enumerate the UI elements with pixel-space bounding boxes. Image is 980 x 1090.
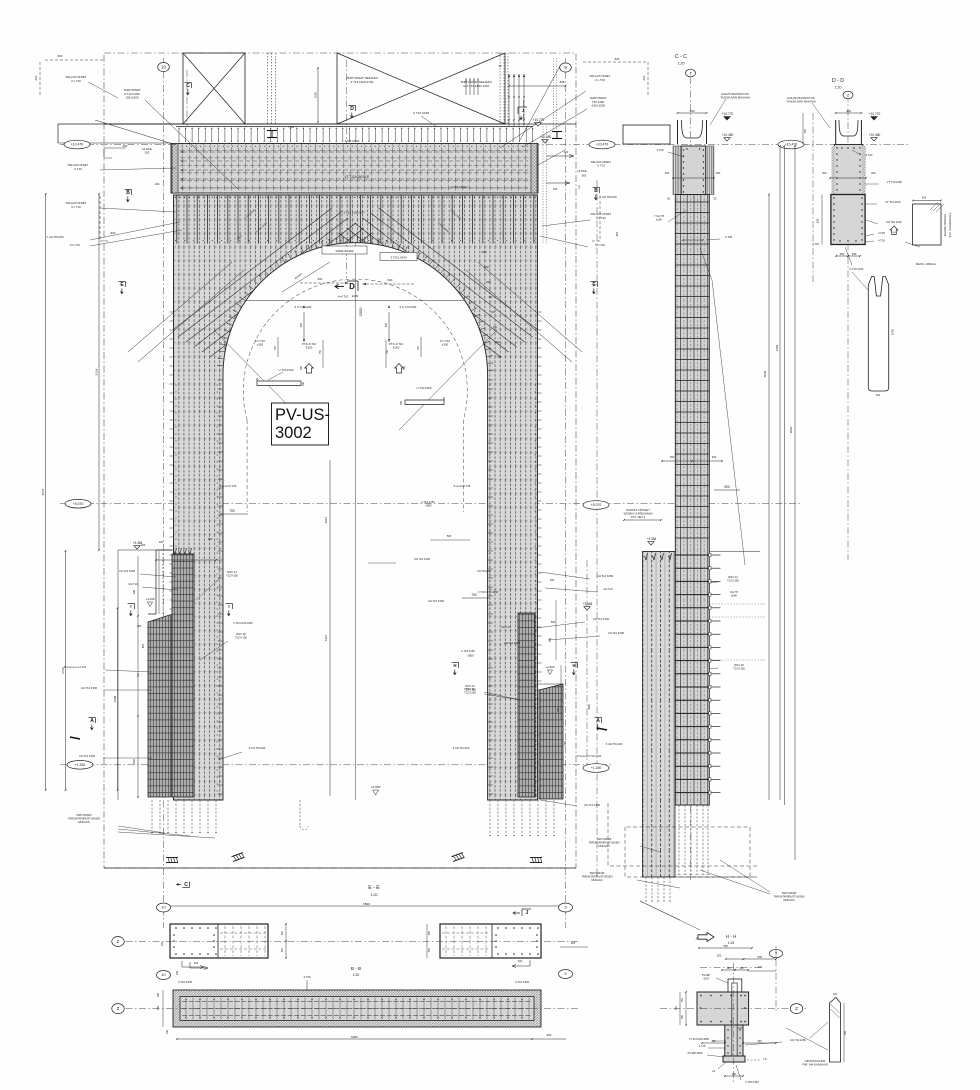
svg-text:300: 300 (176, 970, 179, 975)
svg-text:UH T12 K100: UH T12 K100 (584, 803, 601, 807)
svg-text:UH T10 K190: UH T10 K190 (608, 631, 625, 635)
svg-text:MUKAAN: MUKAAN (783, 898, 794, 902)
svg-text:2 T20: 2 T20 (866, 153, 873, 157)
svg-text:5030: 5030 (763, 370, 767, 377)
svg-text:H: H (572, 663, 575, 668)
svg-text:3 T16 K150-1800: 3 T16 K150-1800 (233, 622, 253, 625)
svg-text:9670: 9670 (41, 488, 45, 495)
svg-text:UH T12 K150: UH T12 K150 (428, 599, 445, 603)
svg-text:310: 310 (876, 393, 881, 397)
svg-text:400: 400 (194, 961, 199, 965)
svg-text:400: 400 (518, 959, 523, 963)
svg-text:LS: LS (712, 1069, 715, 1073)
svg-text:5200: 5200 (351, 1035, 358, 1039)
svg-text:2 T16 k150: 2 T16 k150 (461, 649, 475, 653)
svg-text:-1850: -1850 (425, 504, 432, 508)
svg-text:500: 500 (758, 955, 763, 959)
svg-text:8316: 8316 (324, 516, 328, 523)
svg-text:TARUNTAPIIRUSTUKSEN: TARUNTAPIIRUSTUKSEN (773, 895, 804, 899)
svg-text:U T10 k150: U T10 k150 (417, 386, 432, 390)
svg-text:700: 700 (417, 345, 420, 350)
svg-text:800: 800 (615, 57, 620, 61)
svg-text:UH T10: UH T10 (128, 582, 138, 586)
svg-text:Z: Z (795, 1006, 798, 1011)
svg-text:250: 250 (732, 1073, 737, 1076)
svg-text:100: 100 (553, 187, 558, 191)
svg-text:D: D (350, 106, 354, 112)
svg-text:U T10 k150: U T10 k150 (279, 368, 294, 372)
svg-text:3 T16 K150-1800: 3 T16 K150-1800 (478, 590, 499, 594)
svg-text:+10.770: +10.770 (533, 118, 545, 122)
svg-text:200: 200 (871, 171, 876, 175)
svg-text:750: 750 (471, 593, 477, 597)
svg-text:430: 430 (385, 322, 388, 327)
svg-text:2 T25 L5430: 2 T25 L5430 (345, 139, 360, 143)
svg-text:UH T8 k200: UH T8 k200 (477, 569, 491, 573)
svg-text:+10.480: +10.480 (540, 135, 552, 139)
svg-text:K150: K150 (393, 346, 400, 350)
svg-text:J: J (526, 910, 529, 916)
svg-text:50: 50 (667, 197, 670, 201)
svg-text:450: 450 (493, 326, 498, 329)
svg-text:3 T25 L5430: 3 T25 L5430 (390, 256, 407, 260)
svg-text:400: 400 (550, 578, 555, 582)
svg-text:C - C: C - C (675, 54, 687, 60)
svg-text:800: 800 (58, 54, 63, 58)
svg-text:250: 250 (428, 947, 431, 952)
svg-text:2000: 2000 (358, 307, 363, 317)
svg-text:10: 10 (161, 973, 165, 977)
svg-text:125: 125 (740, 967, 745, 970)
svg-text:UH T12 K150: UH T12 K150 (81, 686, 98, 690)
svg-text:U T10 K150: U T10 K150 (515, 980, 530, 984)
svg-text:U T10 k150: U T10 k150 (849, 267, 863, 271)
svg-text:250: 250 (712, 455, 717, 459)
svg-text:+4.384: +4.384 (647, 537, 657, 541)
svg-text:1:20: 1:20 (678, 62, 685, 66)
svg-text:449: 449 (893, 232, 896, 234)
svg-text:250: 250 (428, 930, 431, 935)
svg-text:UH T10: UH T10 (603, 587, 613, 591)
svg-text:+0.650: +0.650 (371, 785, 381, 789)
svg-text:600: 600 (318, 277, 323, 281)
svg-text:5+2+2+5 T25: 5+2+2+5 T25 (454, 484, 471, 488)
svg-text:UH T12 K100: UH T12 K100 (79, 754, 96, 758)
svg-text:E - E: E - E (368, 885, 380, 891)
svg-text:RSV 18: RSV 18 (236, 632, 246, 636)
svg-text:2 L T16: 2 L T16 (595, 78, 605, 82)
svg-text:750: 750 (319, 349, 322, 354)
svg-text:LIIKUNTASAUMA: LIIKUNTASAUMA (805, 1059, 826, 1063)
svg-text:LS: LS (763, 1057, 766, 1061)
svg-text:9: 9 (564, 906, 566, 910)
svg-text:1000: 1000 (486, 281, 492, 284)
svg-text:1000: 1000 (133, 759, 136, 765)
svg-text:6 U T10 k150: 6 U T10 k150 (400, 305, 417, 309)
svg-text:190+1500: 190+1500 (126, 96, 139, 100)
svg-text:250: 250 (137, 624, 142, 628)
svg-text:-190+1500: -190+1500 (591, 104, 605, 108)
svg-text:6=2+2+1+1+4 T16: 6=2+2+1+1+4 T16 (64, 665, 87, 669)
svg-text:7 UH T8 k100: 7 UH T8 k100 (599, 195, 617, 199)
svg-text:PIIR. 044 N MUKAAN: PIIR. 044 N MUKAAN (802, 1063, 827, 1067)
svg-text:D - D: D - D (832, 78, 844, 84)
svg-text:3 T25: 3 T25 (725, 235, 733, 239)
svg-text:+1.150: +1.150 (75, 763, 86, 767)
svg-text:200: 200 (716, 171, 721, 175)
svg-text:B: B (126, 190, 130, 196)
svg-text:RSV 14: RSV 14 (227, 570, 237, 574)
svg-text:800: 800 (111, 231, 116, 235)
svg-text:+10.480: +10.480 (722, 133, 734, 137)
svg-text:250: 250 (157, 1005, 160, 1010)
svg-text:2 T20: 2 T20 (657, 148, 664, 152)
svg-text:100: 100 (155, 182, 160, 186)
svg-text:200: 200 (166, 1029, 169, 1034)
svg-text:2 T16 k150: 2 T16 k150 (421, 500, 435, 504)
svg-text:500: 500 (758, 1040, 763, 1043)
svg-text:k100: k100 (656, 218, 662, 222)
svg-text:A: A (696, 936, 699, 941)
svg-text:TARTUNNAT: TARTUNNAT (596, 837, 612, 841)
svg-text:9: 9 (564, 972, 566, 976)
svg-text:600: 600 (133, 589, 136, 594)
svg-text:UH T10 k150: UH T10 k150 (886, 220, 902, 224)
svg-text:3=1+2+2+6 T16 K150: 3=1+2+2+6 T16 K150 (577, 755, 602, 758)
svg-text:TASOKUVAN MUKAAN: TASOKUVAN MUKAAN (786, 100, 816, 104)
svg-text:D: D (349, 282, 355, 291)
svg-text:4+4 T12 k100-1700: 4+4 T12 k100-1700 (463, 84, 489, 88)
svg-text:2 T12 k100-1700: 2 T12 k100-1700 (351, 80, 374, 84)
svg-text:1:25: 1:25 (728, 941, 734, 945)
svg-text:MAKS. 1000mm: MAKS. 1000mm (916, 262, 937, 266)
svg-text:MUKAAN: MUKAAN (591, 878, 602, 882)
svg-text:T12 K150: T12 K150 (464, 691, 476, 695)
svg-text:900: 900 (844, 1030, 847, 1035)
svg-text:+10.770: +10.770 (722, 112, 734, 116)
svg-text:TARUNTAPIIRUSTUKSEN: TARUNTAPIIRUSTUKSEN (581, 875, 612, 879)
svg-text:VT T12 k150: VT T12 k150 (885, 200, 901, 204)
svg-text:U T10: U T10 (74, 167, 82, 171)
svg-text:KTS. NAAMAKUVA A: KTS. NAAMAKUVA A (948, 212, 952, 237)
svg-text:ULOKE: ULOKE (577, 169, 586, 173)
svg-text:RSV 14: RSV 14 (728, 575, 738, 579)
svg-text:700: 700 (274, 345, 277, 350)
svg-text:300: 300 (157, 992, 160, 997)
svg-text:500: 500 (547, 1033, 552, 1037)
svg-text:480: 480 (689, 109, 694, 113)
svg-text:50: 50 (713, 197, 716, 201)
svg-text:+10.470: +10.470 (596, 143, 608, 147)
svg-text:PV-MP-3020: PV-MP-3020 (688, 1051, 703, 1055)
svg-text:H: H (453, 663, 456, 668)
svg-text:TARTUNNAT: TARTUNNAT (76, 813, 92, 817)
svg-text:250: 250 (717, 954, 722, 958)
svg-text:6316: 6316 (324, 634, 328, 641)
svg-text:3 T25: 3 T25 (303, 975, 311, 979)
svg-text:SÄDE=R2000: SÄDE=R2000 (335, 249, 353, 253)
svg-text:1650: 1650 (481, 251, 487, 254)
svg-text:H - H: H - H (726, 934, 737, 939)
svg-text:5500: 5500 (363, 902, 370, 906)
svg-text:500: 500 (491, 311, 496, 314)
svg-text:k200: k200 (731, 594, 737, 598)
svg-text:1:20: 1:20 (835, 86, 842, 90)
svg-text:+10.480: +10.480 (869, 133, 881, 137)
svg-text:400: 400 (564, 150, 569, 154)
svg-text:MUKAAN: MUKAAN (78, 820, 90, 824)
svg-text:600: 600 (388, 278, 393, 282)
svg-text:+10.770: +10.770 (869, 112, 881, 116)
svg-text:200: 200 (665, 171, 670, 175)
svg-text:TARTUNNAT: TARTUNNAT (781, 891, 797, 895)
svg-text:z: z (689, 71, 691, 76)
svg-text:K150: K150 (306, 346, 313, 350)
svg-text:I: I (228, 604, 229, 609)
svg-text:400: 400 (758, 965, 763, 969)
svg-text:430: 430 (300, 322, 303, 327)
svg-text:UH T10 k150: UH T10 k150 (790, 1038, 806, 1042)
svg-text:6 UH T8 k100: 6 UH T8 k100 (249, 746, 266, 750)
svg-text:+3.495: +3.495 (146, 597, 155, 601)
svg-text:UH T10: UH T10 (501, 625, 511, 629)
svg-text:7 UH T8: 7 UH T8 (654, 214, 664, 218)
svg-text:500: 500 (551, 620, 556, 624)
svg-text:500: 500 (816, 218, 820, 223)
svg-text:1:20: 1:20 (371, 893, 378, 897)
svg-text:250: 250 (840, 252, 845, 256)
svg-text:750: 750 (723, 944, 728, 948)
svg-text:6 UH T8 k100: 6 UH T8 k100 (453, 746, 470, 750)
svg-text:2 L T16: 2 L T16 (71, 79, 81, 83)
svg-text:400: 400 (208, 537, 213, 541)
svg-text:+5.070: +5.070 (73, 502, 84, 506)
svg-text:VT.3 T12 k150 M.P.: VT.3 T12 k150 M.P. (339, 211, 365, 215)
svg-text:500: 500 (724, 485, 730, 489)
svg-text:I: I (130, 604, 131, 609)
svg-text:7.080: 7.080 (288, 125, 295, 129)
svg-text:UH T10 K150: UH T10 K150 (597, 574, 614, 578)
svg-text:300: 300 (804, 128, 807, 133)
svg-text:430: 430 (922, 196, 927, 200)
svg-text:SEINÄN YLÄREUNAAN: SEINÄN YLÄREUNAAN (624, 512, 653, 516)
svg-text:B - B: B - B (351, 966, 361, 971)
svg-text:RSV 18: RSV 18 (734, 663, 744, 667)
svg-text:250: 250 (852, 252, 857, 256)
svg-text:T12 K150: T12 K150 (226, 574, 238, 578)
svg-text:TARUNTAPIIRUSTUKSEN: TARUNTAPIIRUSTUKSEN (588, 841, 619, 845)
svg-text:750: 750 (386, 349, 389, 354)
svg-text:200: 200 (822, 171, 827, 175)
svg-text:TASOKUVAN MUKAAN: TASOKUVAN MUKAAN (720, 96, 750, 100)
svg-text:UH T8: UH T8 (730, 590, 738, 594)
svg-text:4+4 T10: 4+4 T10 (338, 295, 349, 299)
svg-text:760: 760 (557, 707, 560, 712)
svg-text:3002: 3002 (275, 424, 312, 442)
svg-text:UH T12 K150: UH T12 K150 (504, 641, 521, 645)
svg-text:3685: 3685 (588, 704, 591, 710)
svg-text:NURKKA VIISTEET: NURKKA VIISTEET (626, 508, 650, 512)
svg-text:420: 420 (497, 356, 502, 359)
svg-text:263: 263 (145, 151, 150, 155)
svg-text:UH T10 K150: UH T10 K150 (119, 569, 136, 573)
svg-text:A: A (596, 718, 600, 724)
svg-text:PV-US-: PV-US- (275, 406, 330, 424)
svg-text:z: z (847, 93, 849, 98)
svg-text:10: 10 (161, 65, 166, 70)
svg-text:5+2+2+5 T25: 5+2+2+5 T25 (220, 484, 237, 488)
svg-text:160: 160 (833, 993, 838, 996)
svg-text:45: 45 (498, 64, 502, 68)
svg-text:400: 400 (123, 144, 128, 148)
svg-text:k150: k150 (442, 343, 449, 347)
svg-text:500: 500 (447, 534, 452, 538)
svg-text:+5.070: +5.070 (591, 503, 602, 507)
svg-text:4 T10: 4 T10 (878, 239, 885, 243)
svg-text:C: C (184, 882, 188, 888)
svg-text:563: 563 (582, 174, 587, 178)
svg-text:750: 750 (229, 509, 235, 513)
svg-text:KTS. DET 3: KTS. DET 3 (631, 515, 646, 519)
svg-text:3 T16 K150: 3 T16 K150 (745, 1080, 759, 1084)
svg-text:6 UH T8 k100: 6 UH T8 k100 (606, 742, 623, 746)
svg-text:2409: 2409 (352, 294, 359, 298)
svg-text:VT T10 k150: VT T10 k150 (887, 180, 903, 184)
svg-text:1730: 1730 (564, 741, 567, 747)
svg-text:545: 545 (549, 637, 552, 642)
svg-text:3 T25: 3 T25 (878, 231, 885, 235)
svg-text:RSV 11: RSV 11 (465, 687, 475, 691)
svg-text:U T10: U T10 (597, 164, 605, 168)
svg-text:T12 K150: T12 K150 (235, 636, 247, 640)
svg-text:6750: 6750 (891, 328, 895, 335)
svg-text:Z: Z (117, 1006, 120, 1011)
svg-text:+1.150: +1.150 (591, 766, 602, 770)
svg-text:200: 200 (141, 543, 146, 547)
svg-text:+3.484: +3.484 (583, 602, 593, 606)
svg-text:-3017: -3017 (703, 977, 710, 981)
svg-text:-1850: -1850 (467, 654, 474, 658)
svg-text:125: 125 (727, 967, 732, 970)
svg-text:1 T16: 1 T16 (699, 1044, 706, 1048)
svg-text:5334: 5334 (95, 368, 99, 375)
svg-text:PV-MP: PV-MP (702, 973, 711, 977)
svg-text:250: 250 (281, 947, 284, 952)
svg-text:5 U T10: 5 U T10 (70, 243, 80, 247)
svg-text:3 L T16: 3 L T16 (71, 205, 81, 209)
svg-text:TARUNTAPIIRUSTUKSEN: TARUNTAPIIRUSTUKSEN (68, 817, 100, 821)
svg-text:600: 600 (34, 75, 38, 80)
svg-text:VT.T10 k150 M.P.: VT.T10 k150 M.P. (345, 175, 370, 179)
svg-text:1000: 1000 (314, 91, 318, 98)
svg-text:Z: Z (117, 939, 120, 944)
svg-text:J: J (522, 108, 525, 113)
svg-text:MUKAAN: MUKAAN (598, 844, 609, 848)
svg-text:805: 805 (142, 643, 145, 648)
svg-text:900: 900 (489, 296, 494, 299)
svg-text:100: 100 (161, 941, 164, 946)
svg-text:k150: k150 (257, 343, 264, 347)
svg-text:250: 250 (670, 455, 675, 459)
svg-text:U T10 K150: U T10 K150 (413, 111, 429, 115)
svg-text:KAAREN MUKAAN: KAAREN MUKAAN (943, 214, 947, 237)
svg-text:838: 838 (560, 80, 565, 84)
svg-text:UH T12 K150: UH T12 K150 (593, 617, 610, 621)
svg-text:C: C (186, 83, 190, 89)
svg-text:T12 K150: T12 K150 (733, 667, 745, 671)
svg-text:6 U T10 k150: 6 U T10 k150 (295, 305, 312, 309)
svg-text:3 L T16: 3 L T16 (596, 216, 606, 220)
svg-text:400: 400 (846, 109, 851, 113)
svg-text:7 UH T8 k100: 7 UH T8 k100 (46, 235, 64, 239)
svg-text:T12 K150: T12 K150 (727, 579, 739, 583)
svg-text:200: 200 (159, 540, 164, 544)
svg-text:U T10 K150: U T10 K150 (178, 980, 193, 984)
svg-text:+10.470: +10.470 (71, 143, 83, 147)
svg-text:700: 700 (137, 672, 140, 677)
svg-text:1250: 1250 (484, 266, 490, 269)
svg-text:+10.470: +10.470 (785, 143, 797, 147)
svg-text:600: 600 (642, 75, 646, 80)
svg-text:TARTUNNAT: TARTUNNAT (589, 871, 605, 875)
svg-text:4 T10: 4 T10 (812, 242, 819, 246)
svg-text:5 U T10: 5 U T10 (595, 243, 605, 247)
svg-text:2698: 2698 (113, 695, 117, 702)
svg-text:400: 400 (495, 341, 500, 344)
svg-text:2 T16 K150-1850: 2 T16 K150-1850 (689, 1037, 710, 1041)
svg-text:A: A (90, 718, 94, 724)
svg-text:250: 250 (712, 1040, 717, 1043)
svg-text:2 T25 L5430: 2 T25 L5430 (451, 185, 467, 189)
svg-text:9820: 9820 (789, 426, 793, 433)
svg-text:1:20: 1:20 (353, 973, 360, 977)
svg-text:+2.500: +2.500 (546, 665, 555, 669)
svg-text:B: B (594, 188, 598, 194)
svg-text:6390: 6390 (775, 344, 779, 351)
svg-text:UH T10 K150: UH T10 K150 (414, 557, 430, 561)
svg-text:10: 10 (161, 906, 165, 910)
svg-text:250: 250 (281, 930, 284, 935)
svg-text:800: 800 (615, 231, 619, 236)
